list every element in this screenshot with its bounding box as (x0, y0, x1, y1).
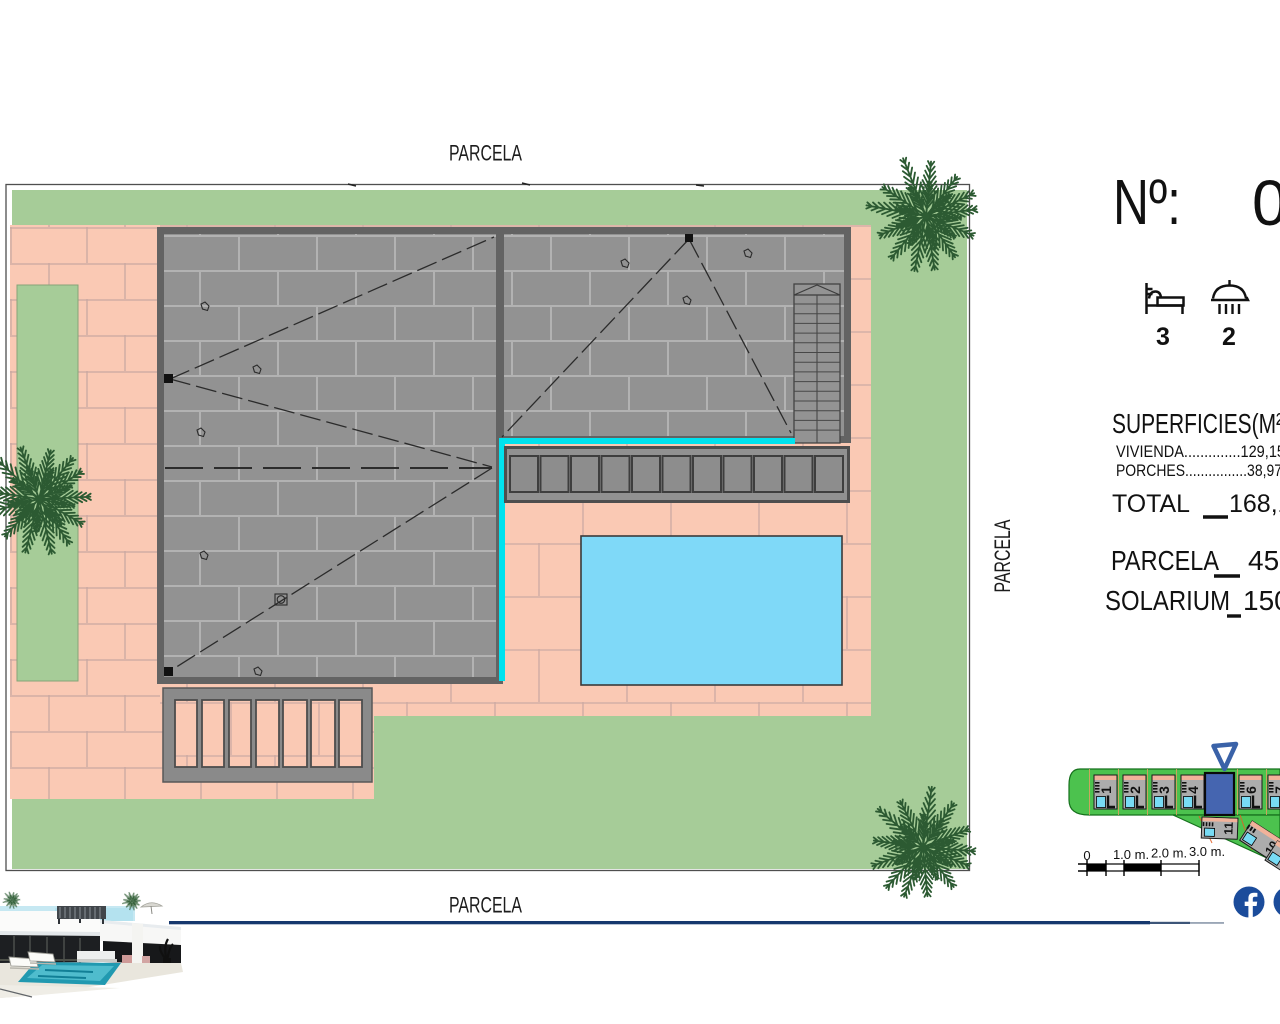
svg-text:4: 4 (1185, 786, 1201, 794)
svg-text:7: 7 (1272, 786, 1280, 794)
svg-text:2: 2 (1127, 786, 1143, 794)
svg-text:1.0 m.: 1.0 m. (1113, 847, 1149, 862)
svg-text:3.0 m.: 3.0 m. (1189, 844, 1225, 859)
svg-text:3: 3 (1156, 786, 1172, 794)
svg-text:SOLARIUM: SOLARIUM (1105, 585, 1230, 616)
svg-text:Nº:: Nº: (1113, 166, 1181, 238)
svg-text:455: 455 (1248, 545, 1280, 576)
svg-text:05: 05 (1252, 167, 1280, 239)
svg-text:2.0 m.: 2.0 m. (1151, 846, 1187, 861)
svg-text:VIVIENDA..............129,15: VIVIENDA..............129,15 (1116, 443, 1280, 461)
svg-text:1: 1 (1098, 786, 1114, 794)
svg-text:PORCHES................38,97: PORCHES................38,97 (1116, 462, 1280, 480)
svg-text:168,12: 168,12 (1229, 490, 1280, 518)
svg-text:150: 150 (1243, 585, 1280, 616)
svg-text:PARCELA: PARCELA (449, 893, 522, 918)
svg-text:TOTAL: TOTAL (1112, 490, 1190, 518)
svg-text:11: 11 (1221, 822, 1235, 835)
svg-text:2: 2 (1222, 323, 1236, 351)
svg-text:3: 3 (1156, 323, 1170, 351)
svg-text:PARCELA: PARCELA (449, 141, 522, 166)
svg-text:PARCELA: PARCELA (990, 519, 1015, 592)
svg-text:PARCELA: PARCELA (1111, 545, 1219, 576)
svg-text:6: 6 (1243, 786, 1259, 794)
svg-text:SUPERFICIES(M²): SUPERFICIES(M²) (1112, 408, 1280, 439)
